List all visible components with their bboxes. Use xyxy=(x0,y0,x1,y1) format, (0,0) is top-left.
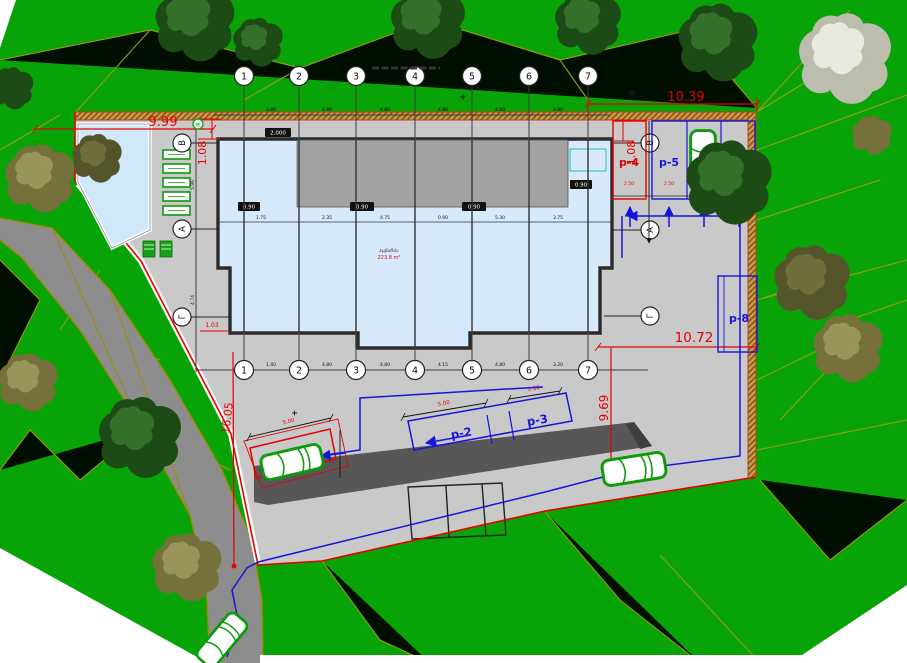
elevation-tag-label: 0.90 xyxy=(243,205,256,211)
dim-label: 4.80 xyxy=(553,107,563,113)
parking-label-p5: p-5 xyxy=(659,156,679,169)
roof-slab xyxy=(297,140,568,207)
grid-bubble-label: 7 xyxy=(585,71,591,82)
dim-1.08-left: 1.08 xyxy=(196,141,209,166)
dim-label: 4.80 xyxy=(322,362,332,368)
dim-label: 3.20 xyxy=(553,362,563,368)
dim-label: 3.80 xyxy=(266,107,276,113)
grid-bubble-label: Γ xyxy=(646,313,656,318)
dim-9.99: 9.99 xyxy=(149,115,178,130)
dim-label: 3.75 xyxy=(553,215,563,221)
planting-symbol: e xyxy=(193,119,203,129)
grid-bubble-label: 2 xyxy=(296,71,302,82)
dim-label: 4.80 xyxy=(495,107,505,113)
dim-label: 5.30 xyxy=(495,215,505,221)
dim-1.03: 1.03 xyxy=(205,322,219,329)
grid-bubble-label: 2 xyxy=(296,365,302,376)
grid-bubble-label: 3 xyxy=(353,365,359,376)
grid-bubble-label: Β xyxy=(178,140,188,146)
dim-label: 4.80 xyxy=(380,362,390,368)
grid-bubble-label: Γ xyxy=(178,314,188,319)
grid-bubble-label: 6 xyxy=(526,71,532,82)
grid-bubble-label: 3 xyxy=(353,71,359,82)
dim-label: 1.75 xyxy=(256,215,266,221)
grid-bubble-label: 1 xyxy=(241,71,247,82)
site-plan-canvas: 1.75 2.35 4.75 0.90 5.30 3.75 2.000 0.90… xyxy=(0,0,907,663)
sun-loungers xyxy=(163,150,190,215)
dim-10.39: 10.39 xyxy=(667,90,704,105)
parking-label-p8: p-8 xyxy=(729,312,749,325)
grid-bubble-label: 4 xyxy=(412,71,418,82)
grid-bubble-label: 4 xyxy=(412,365,418,376)
grid-bubble-label: 5 xyxy=(469,71,475,82)
dim-label: 5.96 xyxy=(190,180,196,190)
svg-text:223.8 m²: 223.8 m² xyxy=(378,255,401,261)
grid-bubble-label: 6 xyxy=(526,365,532,376)
dim-label: 4.80 xyxy=(380,107,390,113)
grid-bubble-label: Α xyxy=(178,226,188,232)
dim-label: 4.80 xyxy=(438,107,448,113)
grid-bubble-label: 5 xyxy=(469,365,475,376)
dim-label: 4.15 xyxy=(438,362,448,368)
dim-label: 1.40 xyxy=(266,362,276,368)
svg-text:εμβαδόν: εμβαδόν xyxy=(379,247,399,254)
dim-label: 2.50 xyxy=(664,181,674,187)
dim-label: 4.74 xyxy=(190,295,196,305)
dim-10.72: 10.72 xyxy=(675,330,714,346)
dim-label: 2.35 xyxy=(322,215,332,221)
dim-label: 4.75 xyxy=(380,215,390,221)
grid-bubble-label: Β xyxy=(646,140,656,146)
dim-label: 2.50 xyxy=(624,181,634,187)
parking-label-p4: p-4 xyxy=(619,156,639,169)
elevation-tag-label: 0.90 xyxy=(468,205,481,211)
grid-bubble-label: Α xyxy=(646,227,656,233)
elevation-tag-label: 0.90 xyxy=(575,183,588,189)
site-plan-svg: 1.75 2.35 4.75 0.90 5.30 3.75 2.000 0.90… xyxy=(0,0,907,663)
dim-9.69: 9.69 xyxy=(597,395,611,422)
grid-bubble-label: 7 xyxy=(585,365,591,376)
elevation-tag-label: 2.000 xyxy=(270,131,286,137)
dim-label: 0.90 xyxy=(438,215,448,221)
svg-text:e: e xyxy=(196,121,200,129)
grid-bubble-label: 1 xyxy=(241,365,247,376)
elevation-tag-label: 0.90 xyxy=(356,205,369,211)
dim-label: 4.80 xyxy=(322,107,332,113)
dim-label: 4.80 xyxy=(495,362,505,368)
